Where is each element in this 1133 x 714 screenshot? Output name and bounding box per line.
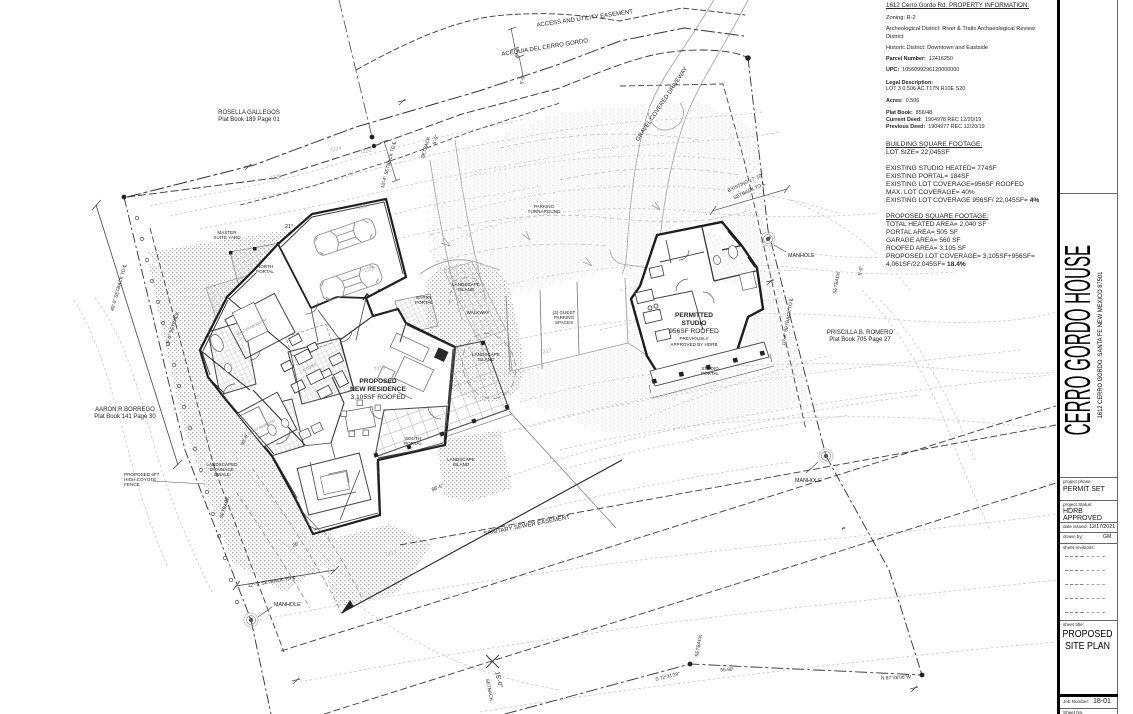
svg-text:7217: 7217 (539, 348, 552, 356)
svg-text:PREVIOUSLY: PREVIOUSLY (679, 336, 708, 341)
svg-text:7224: 7224 (329, 146, 342, 154)
svg-text:55.90': 55.90' (720, 667, 733, 674)
svg-text:PRISCILLA B. ROMERO: PRISCILLA B. ROMERO (827, 330, 894, 336)
svg-text:PROPOSED: PROPOSED (359, 378, 397, 385)
svg-text:N 87°26'06"W: N 87°26'06"W (881, 674, 912, 682)
svg-text:SUITE YARD: SUITE YARD (213, 235, 241, 240)
svg-text:S 72°31'29": S 72°31'29" (655, 671, 681, 683)
svg-text:MANHOLE: MANHOLE (274, 602, 301, 608)
svg-text:3,105SF ROOFED: 3,105SF ROOFED (351, 394, 406, 401)
svg-text:ISLAND: ISLAND (458, 287, 475, 292)
svg-text:ROSELLA GALLEGOS: ROSELLA GALLEGOS (218, 110, 280, 116)
svg-text:40'-0" SETBACK TO ℄: 40'-0" SETBACK TO ℄ (110, 263, 129, 312)
svg-text:MANHOLE: MANHOLE (795, 478, 822, 484)
svg-text:88'-5": 88'-5" (431, 483, 445, 493)
svg-text:ACCESS AND UTILITY EASEMENT: ACCESS AND UTILITY EASEMENT (536, 9, 633, 29)
svg-text:15'-0": 15'-0" (493, 671, 503, 688)
svg-text:ISLAND: ISLAND (478, 357, 495, 362)
svg-text:21°: 21° (285, 224, 293, 230)
svg-text:5'-0": 5'-0" (519, 74, 527, 85)
svg-text:APPROVED BY HDRB: APPROVED BY HDRB (670, 342, 717, 347)
svg-text:ACEQUIA DEL CERRO GORDO: ACEQUIA DEL CERRO GORDO (501, 38, 589, 58)
svg-text:956SF ROOFED: 956SF ROOFED (669, 328, 719, 335)
svg-text:TURNAROUND: TURNAROUND (528, 209, 561, 214)
svg-text:NEW RESIDENCE: NEW RESIDENCE (350, 386, 406, 393)
svg-text:Plat Book 705 Page 27: Plat Book 705 Page 27 (829, 337, 891, 343)
svg-text:SANITARY SEWER EASEMENT: SANITARY SEWER EASEMENT (483, 515, 571, 538)
svg-text:10'-4" SETBACK TO ℄: 10'-4" SETBACK TO ℄ (380, 140, 399, 189)
svg-text:PERMITTED: PERMITTED (675, 312, 713, 319)
svg-text:PORTAL: PORTAL (404, 441, 422, 446)
svg-text:Plat Book 141 Page 30: Plat Book 141 Page 30 (94, 414, 156, 420)
svg-text:SPACES: SPACES (555, 320, 573, 325)
svg-text:SETBACK: SETBACK (694, 633, 704, 657)
svg-text:5'-0": 5'-0" (432, 134, 440, 145)
svg-text:AARON R.BORREGO: AARON R.BORREGO (95, 407, 155, 413)
svg-text:7225: 7225 (269, 174, 282, 182)
svg-text:5'-0": 5'-0" (857, 265, 865, 276)
svg-text:SETBACK: SETBACK (484, 678, 495, 702)
svg-text:PORTAL: PORTAL (415, 300, 433, 305)
svg-text:STUDIO: STUDIO (682, 320, 707, 327)
svg-text:PORTAL: PORTAL (701, 371, 719, 376)
svg-text:SWALE: SWALE (214, 472, 230, 477)
svg-text:℄: ℄ (840, 526, 847, 532)
svg-text:SETBACK: SETBACK (832, 270, 842, 294)
svg-text:7223: 7223 (359, 148, 372, 156)
svg-text:PORTAL: PORTAL (256, 269, 274, 274)
svg-text:FENCE: FENCE (124, 482, 140, 487)
svg-text:Plat Book 189 Page 01: Plat Book 189 Page 01 (218, 117, 280, 123)
svg-text:ISLAND: ISLAND (453, 462, 470, 467)
svg-text:MANHOLE: MANHOLE (788, 253, 815, 259)
svg-text:WALKWAY: WALKWAY (467, 310, 490, 315)
